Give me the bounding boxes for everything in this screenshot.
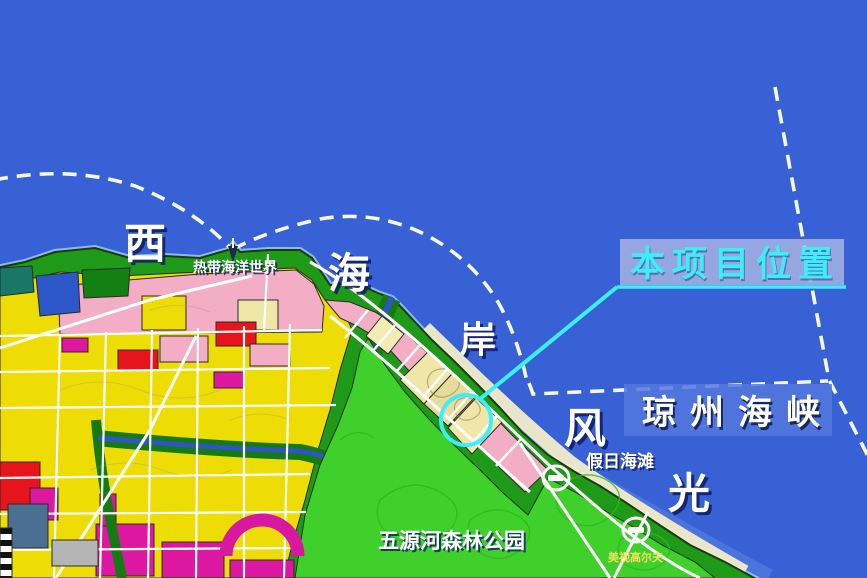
label-feng: 风 bbox=[564, 404, 606, 453]
label-hai: 海 bbox=[328, 249, 370, 298]
label-an: 岸 bbox=[460, 320, 496, 361]
strait-label: 琼州海峡 bbox=[642, 393, 834, 433]
poi-forest-park: 五源河森林公园 bbox=[378, 529, 525, 553]
label-guang: 光 bbox=[668, 469, 710, 518]
poi-golf-course: 美视高尔夫 bbox=[608, 550, 664, 564]
poi-holiday-beach: 假日海滩 bbox=[586, 451, 654, 472]
planning-map: 琼州海峡 本项目位置 西 海 岸 风 光 热带海洋世界 假日海滩 五源河森林公园… bbox=[0, 0, 867, 578]
project-label: 本项目位置 bbox=[630, 245, 840, 285]
strait-label-box: 琼州海峡 bbox=[624, 384, 834, 436]
label-xi: 西 bbox=[124, 219, 166, 268]
poi-ocean-world: 热带海洋世界 bbox=[193, 259, 278, 276]
